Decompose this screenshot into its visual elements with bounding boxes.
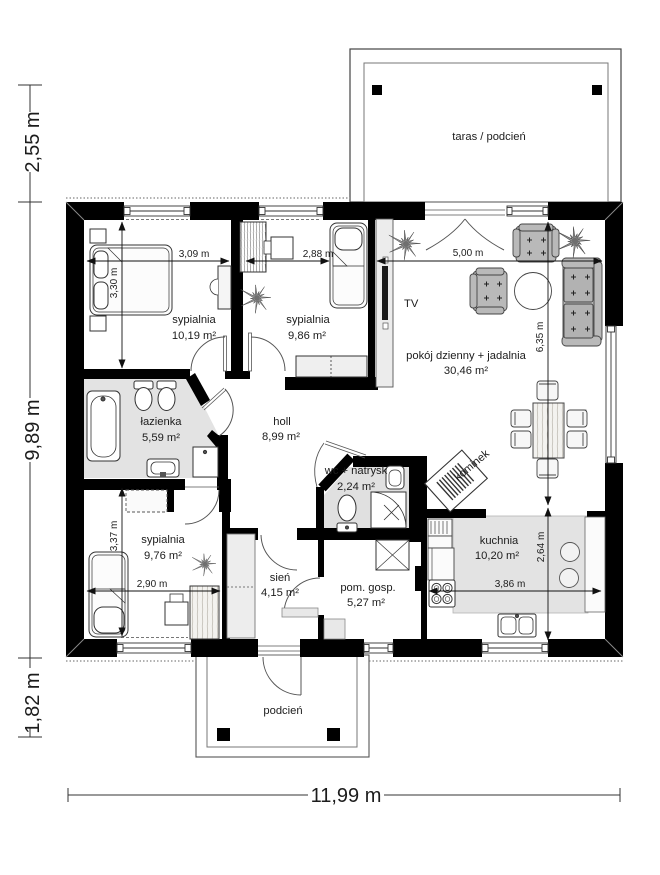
svg-text:2,64 m: 2,64 m — [536, 532, 547, 563]
svg-text:sypialnia: sypialnia — [286, 314, 330, 326]
svg-text:3,37 m: 3,37 m — [109, 521, 120, 552]
svg-text:sypialnia: sypialnia — [172, 314, 216, 326]
svg-text:2,55 m: 2,55 m — [22, 111, 44, 172]
svg-text:8,99 m²: 8,99 m² — [262, 431, 300, 443]
svg-text:łazienka: łazienka — [140, 416, 182, 428]
svg-text:6,35 m: 6,35 m — [535, 322, 546, 353]
svg-text:11,99 m: 11,99 m — [311, 785, 382, 807]
svg-text:kuchnia: kuchnia — [480, 535, 519, 547]
svg-text:podcień: podcień — [263, 705, 302, 717]
svg-text:5,59 m²: 5,59 m² — [142, 432, 180, 444]
svg-text:9,89 m: 9,89 m — [22, 399, 44, 460]
svg-text:9,86 m²: 9,86 m² — [288, 330, 326, 342]
svg-text:sypialnia: sypialnia — [141, 534, 185, 546]
svg-text:3,86 m: 3,86 m — [495, 579, 526, 590]
svg-text:30,46 m²: 30,46 m² — [444, 365, 488, 377]
svg-text:sień: sień — [270, 572, 291, 584]
svg-text:pokój dzienny + jadalnia: pokój dzienny + jadalnia — [406, 350, 527, 362]
svg-text:wc + natrysk: wc + natrysk — [324, 465, 388, 477]
svg-text:1,82 m: 1,82 m — [22, 672, 44, 733]
svg-text:4,15 m²: 4,15 m² — [261, 587, 299, 599]
svg-text:5,00 m: 5,00 m — [453, 248, 484, 259]
svg-text:pom. gosp.: pom. gosp. — [340, 582, 395, 594]
svg-text:10,20 m²: 10,20 m² — [475, 550, 519, 562]
svg-text:2,88 m: 2,88 m — [303, 249, 334, 260]
svg-text:10,19 m²: 10,19 m² — [172, 330, 216, 342]
svg-text:taras / podcień: taras / podcień — [452, 131, 525, 143]
svg-text:5,27 m²: 5,27 m² — [347, 597, 385, 609]
svg-text:2,90 m: 2,90 m — [137, 579, 168, 590]
svg-text:9,76 m²: 9,76 m² — [144, 550, 182, 562]
svg-text:TV: TV — [404, 298, 419, 310]
svg-text:3,30 m: 3,30 m — [109, 268, 120, 299]
svg-text:2,24 m²: 2,24 m² — [337, 481, 375, 493]
svg-text:3,09 m: 3,09 m — [179, 249, 210, 260]
svg-text:holl: holl — [273, 416, 290, 428]
